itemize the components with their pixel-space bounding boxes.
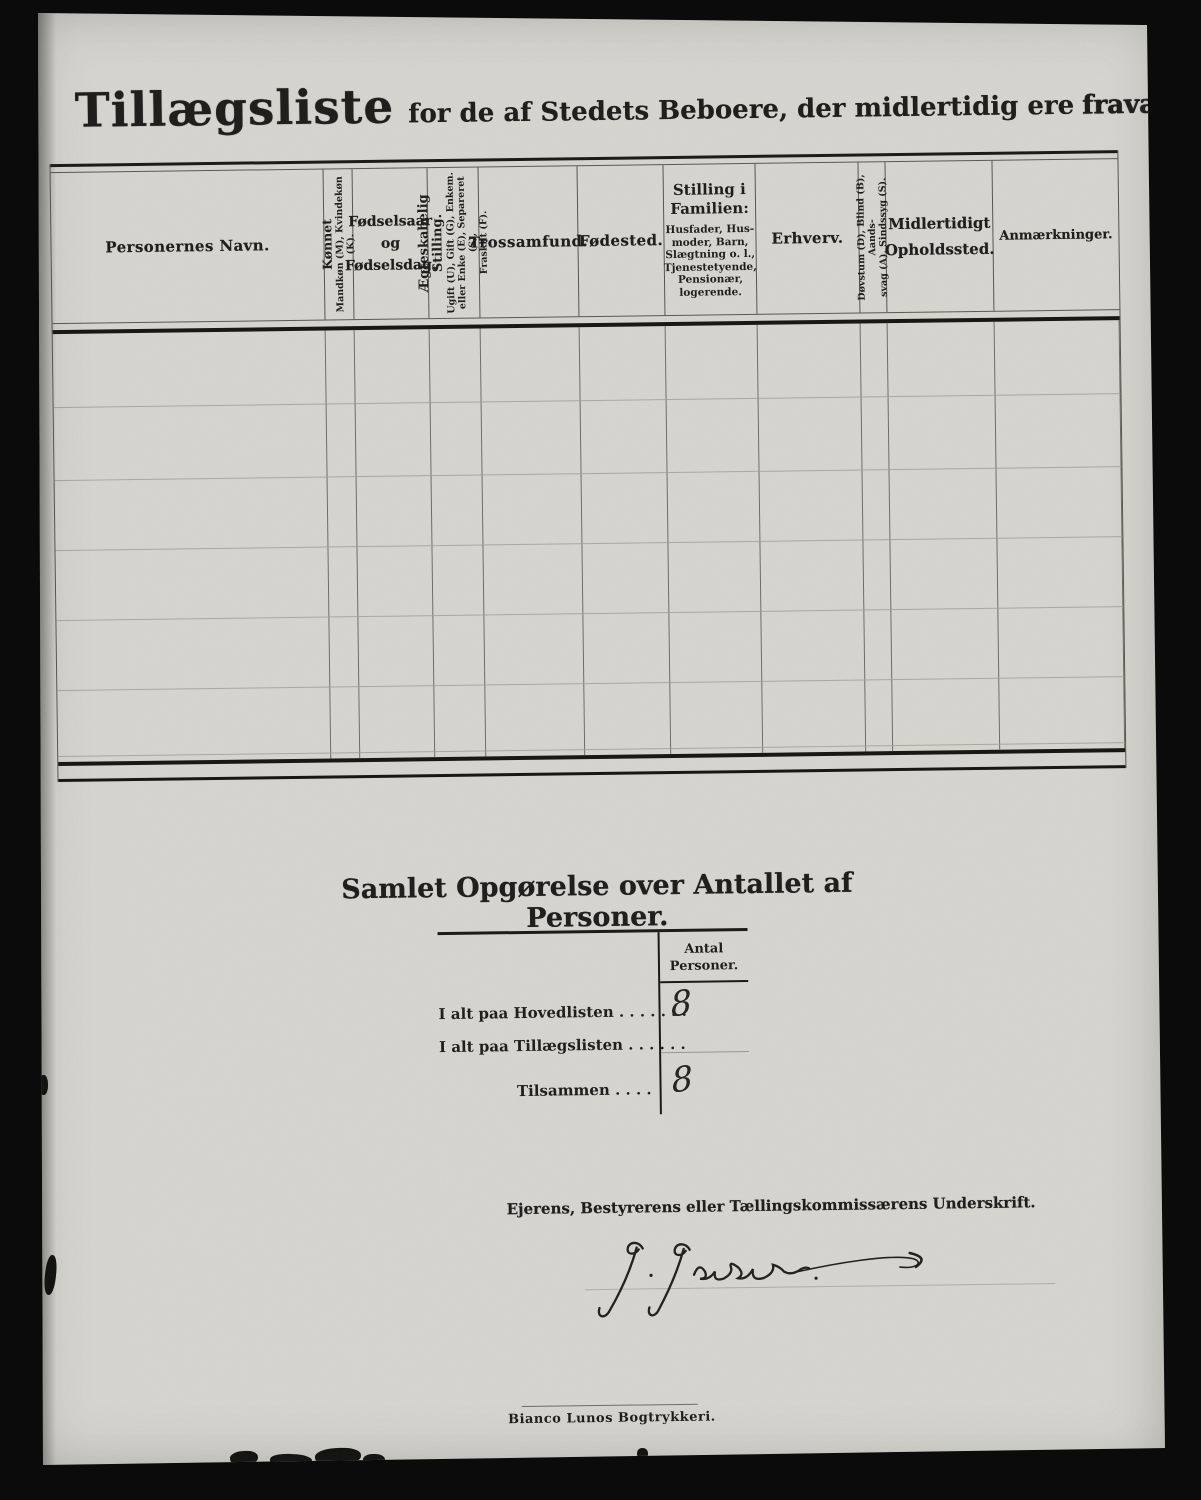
body-cell	[758, 324, 867, 753]
summary-row-hovedlisten-label: I alt paa Hovedlisten . . . . . . .	[438, 1002, 650, 1023]
scan-artifact	[270, 1453, 312, 1467]
scanned-census-page: { "colors": { "background": "#0b0b0b", "…	[0, 0, 1201, 1500]
signature-caption: Ejerens, Bestyrerens eller Tællingskommi…	[451, 1193, 1091, 1219]
scan-artifact	[315, 1447, 362, 1466]
scan-artifact	[39, 1075, 48, 1095]
body-cell	[355, 329, 436, 758]
page-title-end: fraværende.	[1082, 88, 1201, 120]
body-cell	[430, 328, 487, 757]
column-header-birthplace: Fødested.	[578, 165, 666, 316]
body-cell	[580, 326, 672, 755]
page-title: Tillægslistefor de af Stedets Beboere, d…	[74, 70, 1115, 139]
summary-count-header-rule	[660, 980, 748, 983]
census-table: Personernes Navn. Kønnet Mandkøn (M), Kv…	[49, 150, 1126, 782]
page-title-main: Tillægsliste	[74, 80, 394, 139]
handwritten-count-hovedlisten: 8	[670, 984, 692, 1024]
column-header-religion: Trossamfund.	[479, 166, 580, 317]
paper-sheet: Tillægslistefor de af Stedets Beboere, d…	[25, 5, 1170, 1472]
summary-table: Antal Personer. I alt paa Hovedlisten . …	[438, 928, 750, 1119]
summary-row-tillaegslisten-label: I alt paa Tillægslisten . . . . . .	[439, 1035, 651, 1056]
summary-title: Samlet Opgørelse over Antallet af Person…	[287, 867, 908, 937]
body-cell	[481, 327, 586, 756]
column-header-remarks: Anmærkninger.	[992, 159, 1119, 311]
column-header-disabilities: Døvstum (D), Blind (B), Aands- svag (A),…	[858, 162, 887, 312]
handwritten-signature	[579, 1227, 940, 1328]
summary-value-divider	[661, 1051, 749, 1053]
column-header-family-position: Stilling i Familien: Husfader, Hus- mode…	[663, 164, 757, 315]
printer-imprint: Bianco Lunos Bogtrykkeri.	[502, 1409, 722, 1427]
column-header-occupation: Erhverv.	[755, 163, 860, 314]
page-title-mid: for de af Stedets Beboere, der midlertid…	[408, 91, 1074, 130]
body-cell	[666, 325, 764, 754]
printer-divider	[522, 1404, 698, 1407]
handwritten-count-tilsammen: 8	[671, 1060, 693, 1100]
scan-artifact	[230, 1450, 259, 1466]
scan-artifact	[637, 1448, 648, 1459]
table-header-row: Personernes Navn. Kønnet Mandkøn (M), Kv…	[51, 159, 1120, 323]
column-header-name: Personernes Navn.	[51, 170, 326, 324]
table-body-empty	[53, 320, 1126, 762]
column-header-temporary-residence: Midlertidigt Opholdssted.	[885, 161, 994, 312]
body-cell	[995, 320, 1126, 750]
summary-row-tilsammen-label: Tilsammen . . . .	[439, 1080, 651, 1101]
summary-count-column-header: Antal Personer.	[660, 940, 748, 975]
body-cell	[888, 322, 1001, 751]
scan-artifact	[363, 1454, 385, 1466]
printed-content: Tillægslistefor de af Stedets Beboere, d…	[15, 0, 1179, 1479]
